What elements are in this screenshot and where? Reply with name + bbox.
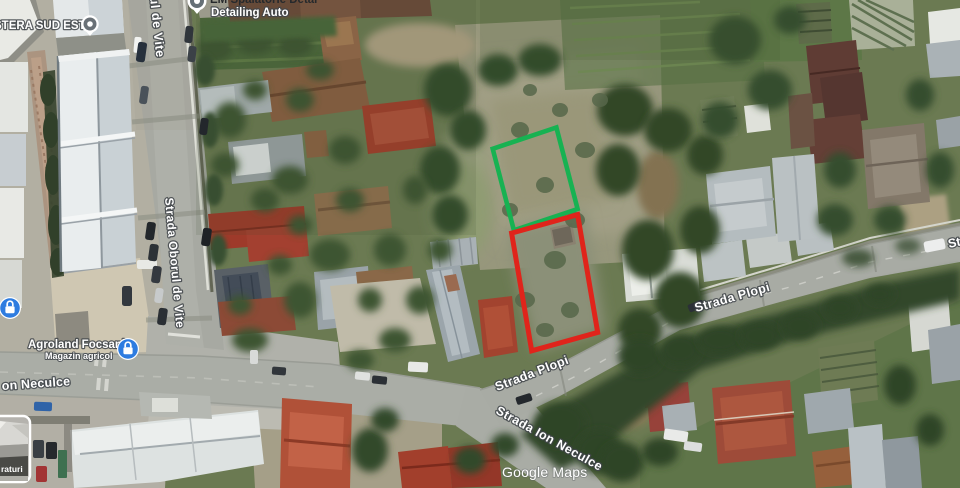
svg-text:St: St [947, 234, 960, 250]
svg-text:Google Maps: Google Maps [502, 464, 587, 480]
svg-text:STERA SUD EST: STERA SUD EST [0, 20, 86, 32]
svg-text:raturi: raturi [1, 464, 23, 474]
svg-text:Detailing Auto: Detailing Auto [211, 7, 289, 19]
svg-text:EM Spalatorie Detai: EM Spalatorie Detai [210, 0, 317, 6]
svg-text:Agroland Focsani: Agroland Focsani [28, 339, 125, 351]
svg-text:Magazin agricol: Magazin agricol [45, 351, 113, 361]
